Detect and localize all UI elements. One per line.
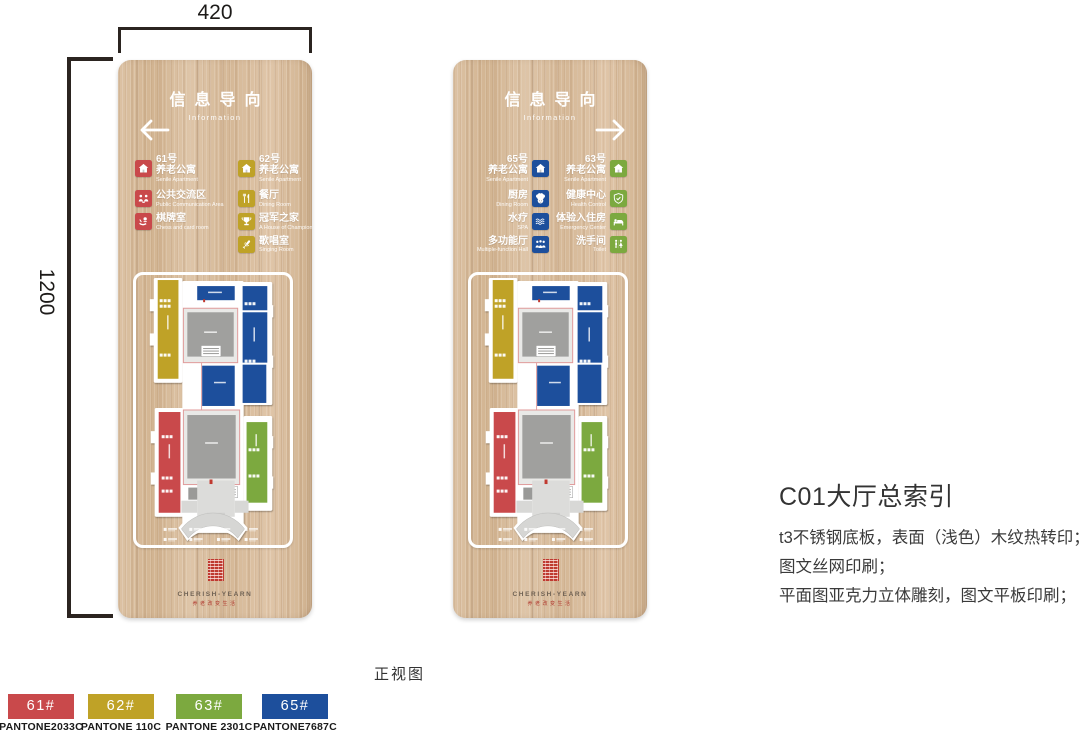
legend-label-zh: 多功能厅 [477, 236, 528, 247]
legend-number: 61号 [156, 154, 198, 165]
swatch-pantone-code: PANTONE7687C [235, 721, 355, 733]
legend-item-text: 63号养老公寓Senile Apartment [564, 154, 606, 183]
legend-item-text: 洗手间Toilet [576, 236, 606, 254]
legend-item-text: 多功能厅Multiple-function Hall [477, 236, 528, 254]
legend-item: 65号养老公寓Senile Apartment [462, 154, 549, 183]
legend-item: 体验入住房Emergency Center [550, 213, 627, 231]
legend-item-text: 冠军之家A House of Champions [259, 213, 312, 231]
width-dimension-bracket [118, 27, 312, 53]
pantone-swatch: 63# [176, 694, 242, 719]
spec-line: 图文丝网印刷； [779, 553, 1079, 582]
legend-label-zh: 歌唱室 [259, 236, 294, 247]
swatch-number: 62# [88, 694, 154, 719]
legend-column: 61号养老公寓Senile Apartment公共交流区Public Commu… [135, 154, 235, 236]
sign-panel-right: 信息导向 Information 65号养老公寓Senile Apartment… [453, 60, 647, 618]
panel-header: 信息导向 Information [118, 86, 312, 122]
legend-label-zh: 养老公寓 [259, 165, 301, 176]
height-dimension-tick-bottom [67, 614, 113, 618]
legend-item: 健康中心Health Control [550, 190, 627, 208]
legend-label-en: Public Communication Area [156, 202, 224, 208]
legend-label-en: A House of Champions [259, 225, 312, 231]
legend-label-en: Multiple-function Hall [477, 247, 528, 253]
trophy-icon [238, 213, 255, 230]
legend-label-en: Senile Apartment [156, 177, 198, 183]
height-dimension-line [67, 57, 71, 618]
legend-label-en: Senile Apartment [564, 177, 606, 183]
legend-item-text: 歌唱室Singing Room [259, 236, 294, 254]
legend-item-text: 62号养老公寓Senile Apartment [259, 154, 301, 183]
pantone-swatch: 61# [8, 694, 74, 719]
legend-label-en: Health Control [566, 202, 606, 208]
legend-item: 公共交流区Public Communication Area [135, 190, 235, 208]
legend-item: 63号养老公寓Senile Apartment [550, 154, 627, 183]
legend-label-zh: 养老公寓 [486, 165, 528, 176]
microphone-icon [238, 236, 255, 253]
width-dimension-label: 420 [118, 1, 312, 25]
legend-label-zh: 体验入住房 [556, 213, 606, 224]
legend-label-en: Dining Room [259, 202, 291, 208]
legend-item: 棋牌室Chess and card room [135, 213, 235, 231]
spec-notes: C01大厅总索引 t3不锈钢底板，表面（浅色）木纹热转印； 图文丝网印刷； 平面… [779, 477, 1079, 611]
toilet-icon [610, 236, 627, 253]
brand-name: CHERISH-YEARN [453, 591, 647, 598]
panel-title: 信息导向 [453, 86, 647, 110]
legend-label-zh: 养老公寓 [156, 165, 198, 176]
legend-label-zh: 厨房 [496, 190, 528, 201]
design-sheet: 420 1200 信息导向 Information 61号养老公寓Senile … [0, 0, 1080, 733]
legend-label-zh: 洗手间 [576, 236, 606, 247]
swatch-number: 63# [176, 694, 242, 719]
legend-item: 餐厅Dining Room [238, 190, 310, 208]
legend-item: 多功能厅Multiple-function Hall [462, 236, 549, 254]
legend-item: 61号养老公寓Senile Apartment [135, 154, 235, 183]
legend-label-en: SPA [508, 225, 528, 231]
panel-title: 信息导向 [118, 86, 312, 110]
floor-plan-map [133, 272, 293, 548]
chess-icon [135, 213, 152, 230]
legend-label-en: Senile Apartment [259, 177, 301, 183]
legend-item: 冠军之家A House of Champions [238, 213, 310, 231]
floor-plan [136, 275, 290, 545]
shield-icon [610, 190, 627, 207]
spec-line: t3不锈钢底板，表面（浅色）木纹热转印； [779, 524, 1079, 553]
house-icon [532, 160, 549, 177]
height-dimension-tick-top [67, 57, 113, 61]
house-icon [135, 160, 152, 177]
people-icon [135, 190, 152, 207]
pantone-swatch: 62# [88, 694, 154, 719]
panel-header: 信息导向 Information [453, 86, 647, 122]
legend-item-text: 体验入住房Emergency Center [556, 213, 606, 231]
legend-item-text: 公共交流区Public Communication Area [156, 190, 224, 208]
legend-label-zh: 养老公寓 [564, 165, 606, 176]
spec-title: C01大厅总索引 [779, 477, 1079, 513]
legend-item-text: 61号养老公寓Senile Apartment [156, 154, 198, 183]
floor-plan [471, 275, 625, 545]
chef-icon [532, 190, 549, 207]
legend-item-text: 65号养老公寓Senile Apartment [486, 154, 528, 183]
legend-label-en: Chess and card room [156, 225, 209, 231]
legend-label-zh: 公共交流区 [156, 190, 224, 201]
legend-item-text: 厨房Dining Room [496, 190, 528, 208]
brand-logo: CHERISH-YEARN 养老改变生活 [118, 556, 312, 607]
legend-item: 洗手间Toilet [550, 236, 627, 254]
legend-item: 62号养老公寓Senile Apartment [238, 154, 310, 183]
swatch-number: 61# [8, 694, 74, 719]
arrow-left-icon [138, 118, 170, 142]
legend-item: 歌唱室Singing Room [238, 236, 310, 254]
legend-label-en: Senile Apartment [486, 177, 528, 183]
legend-item: 水疗SPA [462, 213, 549, 231]
legend-label-zh: 水疗 [508, 213, 528, 224]
legend-number: 65号 [486, 154, 528, 165]
group-icon [532, 236, 549, 253]
legend-item-text: 餐厅Dining Room [259, 190, 291, 208]
legend-label-en: Dining Room [496, 202, 528, 208]
legend-label-zh: 餐厅 [259, 190, 291, 201]
brand-tagline: 养老改变生活 [453, 600, 647, 607]
floor-plan-svg [471, 275, 625, 545]
spec-line: 平面图亚克力立体雕刻，图文平板印刷； [779, 582, 1079, 611]
legend-number: 63号 [564, 154, 606, 165]
legend-column: 65号养老公寓Senile Apartment厨房Dining Room水疗SP… [462, 154, 549, 259]
legend-column: 62号养老公寓Senile Apartment餐厅Dining Room冠军之家… [238, 154, 310, 259]
legend: 65号养老公寓Senile Apartment厨房Dining Room水疗SP… [453, 154, 647, 270]
front-view-label: 正视图 [374, 663, 425, 684]
legend-number: 62号 [259, 154, 301, 165]
floor-plan-map [468, 272, 628, 548]
height-dimension-label: 1200 [34, 269, 58, 316]
legend-label-en: Toilet [576, 247, 606, 253]
brand-seal-icon [540, 556, 561, 583]
legend-item-text: 健康中心Health Control [566, 190, 606, 208]
floor-plan-svg [136, 275, 290, 545]
legend-label-zh: 健康中心 [566, 190, 606, 201]
house-icon [238, 160, 255, 177]
legend-item-text: 棋牌室Chess and card room [156, 213, 209, 231]
sign-panel-left: 信息导向 Information 61号养老公寓Senile Apartment… [118, 60, 312, 618]
legend-label-zh: 棋牌室 [156, 213, 209, 224]
legend-label-en: Singing Room [259, 247, 294, 253]
legend-label-en: Emergency Center [556, 225, 606, 231]
bed-icon [610, 213, 627, 230]
legend-item-text: 水疗SPA [508, 213, 528, 231]
legend-item: 厨房Dining Room [462, 190, 549, 208]
spa-icon [532, 213, 549, 230]
legend-label-zh: 冠军之家 [259, 213, 312, 224]
dining-icon [238, 190, 255, 207]
house-icon [610, 160, 627, 177]
legend-column: 63号养老公寓Senile Apartment健康中心Health Contro… [550, 154, 627, 259]
swatch-number: 65# [262, 694, 328, 719]
brand-logo: CHERISH-YEARN 养老改变生活 [453, 556, 647, 607]
brand-name: CHERISH-YEARN [118, 591, 312, 598]
legend: 61号养老公寓Senile Apartment公共交流区Public Commu… [118, 154, 312, 270]
pantone-swatch: 65# [262, 694, 328, 719]
brand-tagline: 养老改变生活 [118, 600, 312, 607]
brand-seal-icon [205, 556, 226, 583]
arrow-right-icon [595, 118, 627, 142]
